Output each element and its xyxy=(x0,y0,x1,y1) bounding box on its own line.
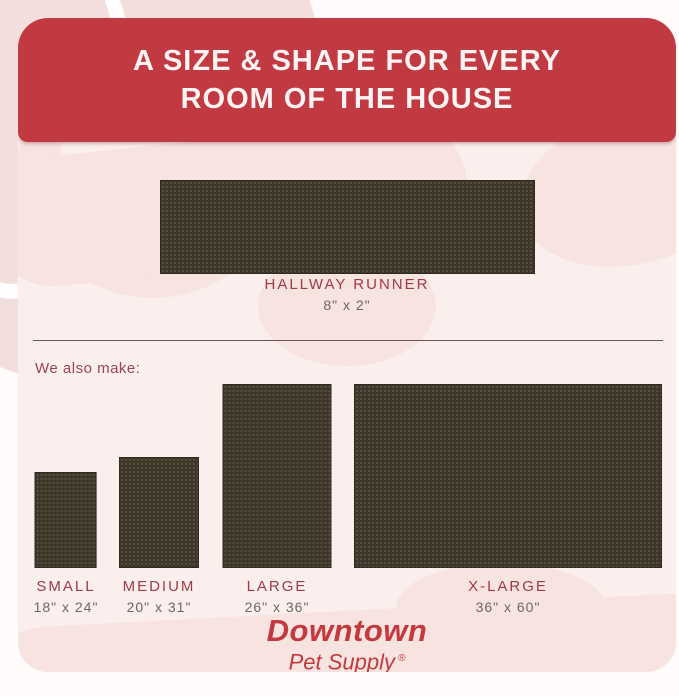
brand-name: Downtown xyxy=(18,615,676,647)
size-item-medium: MEDIUM 20" x 31" xyxy=(119,457,199,615)
size-name-large: LARGE xyxy=(247,578,308,595)
size-dims-medium: 20" x 31" xyxy=(127,599,192,615)
registered-mark-icon: ® xyxy=(398,653,405,664)
also-make-label: We also make: xyxy=(35,360,140,377)
section-divider xyxy=(33,340,663,341)
rug-xlarge xyxy=(354,384,662,568)
brand-tagline-text: Pet Supply xyxy=(289,649,395,672)
rug-hallway-runner xyxy=(160,180,535,274)
size-item-small: SMALL 18" x 24" xyxy=(34,472,99,615)
size-dims-xlarge: 36" x 60" xyxy=(476,599,541,615)
header-title-line-1: A SIZE & SHAPE FOR EVERY xyxy=(133,42,561,80)
size-item-xlarge: X-LARGE 36" x 60" xyxy=(354,384,662,615)
rug-medium xyxy=(119,457,199,568)
hallway-runner-dims: 8" x 2" xyxy=(18,297,676,313)
brand-tagline: Pet Supply® xyxy=(18,647,676,672)
header-title-line-2: ROOM OF THE HOUSE xyxy=(181,80,514,118)
rug-small xyxy=(35,472,97,568)
hallway-runner-label: HALLWAY RUNNER xyxy=(18,276,676,293)
size-item-large: LARGE 26" x 36" xyxy=(223,384,332,615)
size-name-medium: MEDIUM xyxy=(123,578,196,595)
size-name-xlarge: X-LARGE xyxy=(468,578,548,595)
content-card: A SIZE & SHAPE FOR EVERY ROOM OF THE HOU… xyxy=(18,18,676,672)
rug-large xyxy=(223,384,332,568)
size-dims-small: 18" x 24" xyxy=(34,599,99,615)
brand-logo: Downtown Pet Supply® xyxy=(18,615,676,672)
infographic: A SIZE & SHAPE FOR EVERY ROOM OF THE HOU… xyxy=(0,0,679,696)
header-banner: A SIZE & SHAPE FOR EVERY ROOM OF THE HOU… xyxy=(18,18,676,142)
size-name-small: SMALL xyxy=(36,578,95,595)
